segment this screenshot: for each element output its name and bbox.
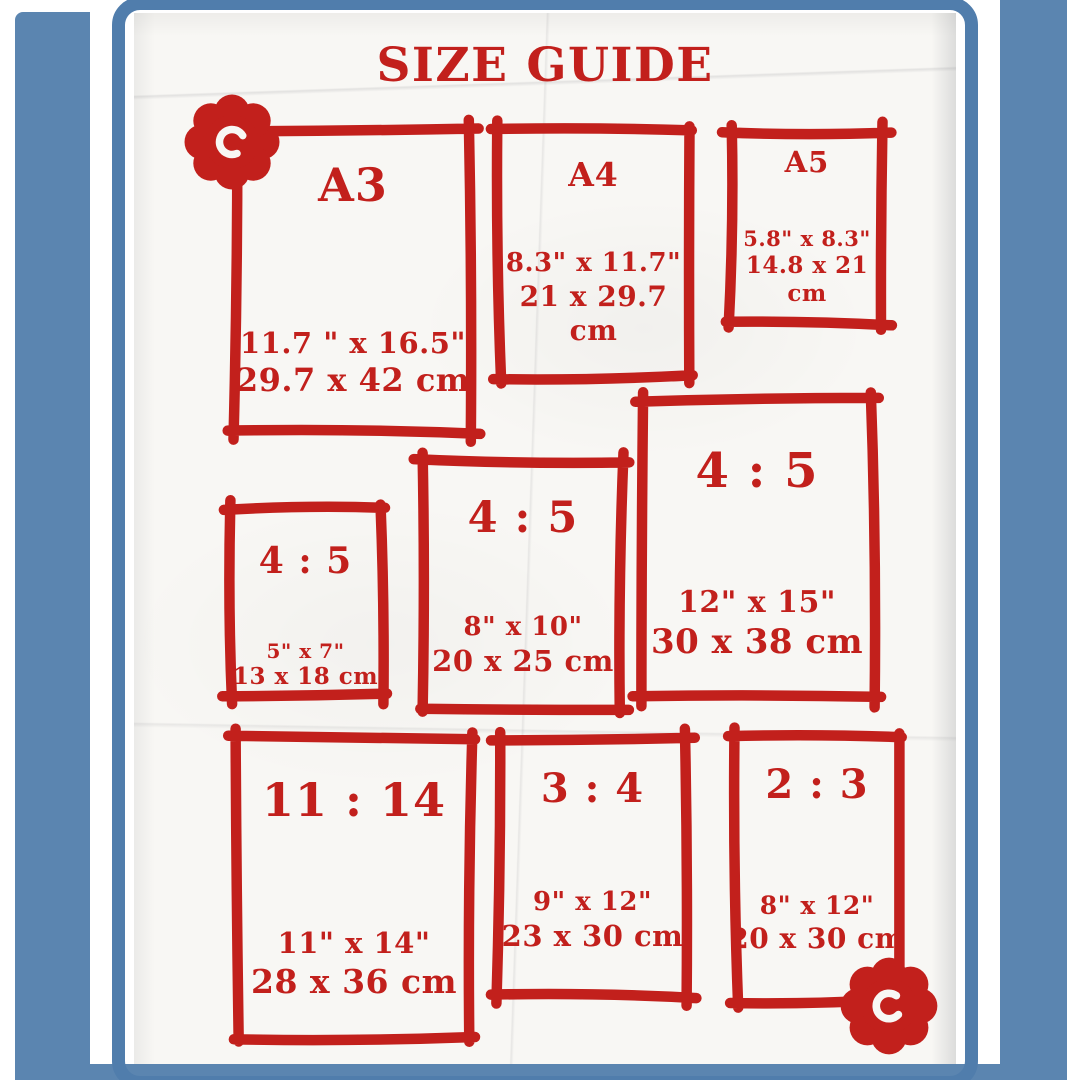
size-guide-poster: SIZE GUIDE A3 11.7 " x 16.5" 29.7 x 42 c…	[0, 0, 1080, 1080]
size-box-a4: A4 8.3" x 11.7" 21 x 29.7 cm	[492, 124, 695, 384]
size-inches: 5.8" x 8.3"	[724, 226, 890, 252]
size-cm: 14.8 x 21 cm	[724, 252, 890, 308]
size-box-11-14: 11 : 14 11" x 14" 28 x 36 cm	[231, 731, 477, 1044]
size-box-4-5-large: 4 : 5 12" x 15" 30 x 38 cm	[634, 393, 880, 705]
size-dimensions: 5.8" x 8.3" 14.8 x 21 cm	[724, 226, 890, 308]
size-label: 4 : 5	[223, 543, 388, 579]
size-dimensions: 12" x 15" 30 x 38 cm	[634, 585, 880, 663]
size-dimensions: 8" x 10" 20 x 25 cm	[417, 612, 629, 679]
size-cm: 30 x 38 cm	[634, 622, 880, 663]
size-dimensions: 8" x 12" 20 x 30 cm	[729, 891, 905, 956]
size-cm: 13 x 18 cm	[223, 663, 388, 691]
size-cm: 20 x 30 cm	[729, 922, 905, 956]
size-inches: 9" x 12"	[491, 887, 694, 919]
size-inches: 8" x 10"	[417, 612, 629, 644]
size-box-2-3: 2 : 3 8" x 12" 20 x 30 cm	[729, 731, 905, 1008]
size-label: A4	[492, 158, 695, 191]
size-inches: 8" x 12"	[729, 891, 905, 922]
blue-mat-right	[1000, 0, 1067, 1080]
size-dimensions: 5" x 7" 13 x 18 cm	[223, 639, 388, 691]
size-label: A5	[724, 148, 890, 177]
size-inches: 12" x 15"	[634, 585, 880, 622]
size-label: 2 : 3	[729, 765, 905, 805]
size-cm: 28 x 36 cm	[231, 962, 477, 1002]
size-inches: 5" x 7"	[223, 639, 388, 663]
size-cm: 21 x 29.7 cm	[492, 280, 695, 348]
size-label: 4 : 5	[634, 447, 880, 495]
size-inches: 11" x 14"	[231, 926, 477, 961]
size-box-4-5-small: 4 : 5 5" x 7" 13 x 18 cm	[223, 503, 388, 703]
size-dimensions: 11.7 " x 16.5" 29.7 x 42 cm	[228, 326, 478, 400]
size-label: 4 : 5	[417, 497, 629, 540]
size-label: 3 : 4	[491, 769, 694, 809]
size-dimensions: 11" x 14" 28 x 36 cm	[231, 926, 477, 1002]
blue-mat-left	[15, 12, 90, 1080]
size-box-3-4: 3 : 4 9" x 12" 23 x 30 cm	[491, 731, 694, 1004]
page-title: SIZE GUIDE	[134, 38, 956, 93]
size-cm: 23 x 30 cm	[491, 919, 694, 954]
size-label: A3	[228, 162, 478, 208]
size-box-4-5-mid: 4 : 5 8" x 10" 20 x 25 cm	[417, 453, 629, 715]
size-cm: 20 x 25 cm	[417, 644, 629, 679]
size-cm: 29.7 x 42 cm	[228, 361, 478, 400]
size-inches: 11.7 " x 16.5"	[228, 326, 478, 361]
size-box-a5: A5 5.8" x 8.3" 14.8 x 21 cm	[724, 124, 890, 330]
size-inches: 8.3" x 11.7"	[492, 248, 695, 280]
size-dimensions: 8.3" x 11.7" 21 x 29.7 cm	[492, 248, 695, 348]
size-dimensions: 9" x 12" 23 x 30 cm	[491, 887, 694, 954]
size-label: 11 : 14	[231, 777, 477, 823]
size-box-a3: A3 11.7 " x 16.5" 29.7 x 42 cm	[228, 122, 478, 440]
